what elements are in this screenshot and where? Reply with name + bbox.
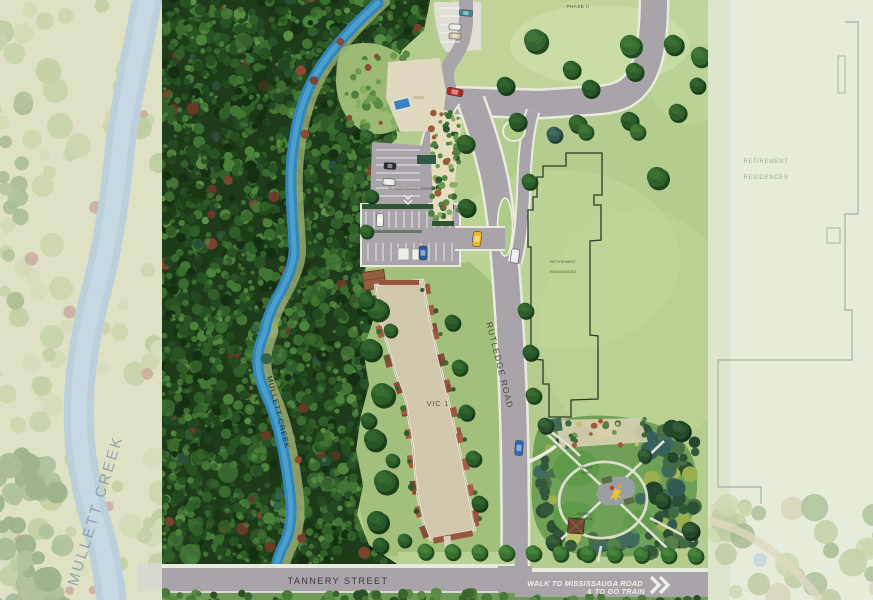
svg-text:GAZEBO: GAZEBO [577,512,591,516]
svg-text:PHASE II: PHASE II [566,4,589,9]
svg-text:RESIDENCES: RESIDENCES [550,269,576,274]
svg-text:PARK: PARK [582,471,592,475]
svg-text:TANNERY STREET: TANNERY STREET [287,576,388,586]
svg-text:BIG AREA: BIG AREA [576,517,593,521]
svg-text:RETIREMENT: RETIREMENT [744,159,789,165]
svg-text:RESIDENCES: RESIDENCES [743,175,788,181]
svg-text:VIC 1: VIC 1 [427,399,450,408]
svg-text:& TO GO TRAIN: & TO GO TRAIN [587,587,646,596]
svg-text:FRUITS: FRUITS [580,466,593,470]
svg-text:RETIREMENT: RETIREMENT [550,259,577,264]
svg-text:TO UNDERGROUND PARKING: TO UNDERGROUND PARKING [388,187,434,191]
